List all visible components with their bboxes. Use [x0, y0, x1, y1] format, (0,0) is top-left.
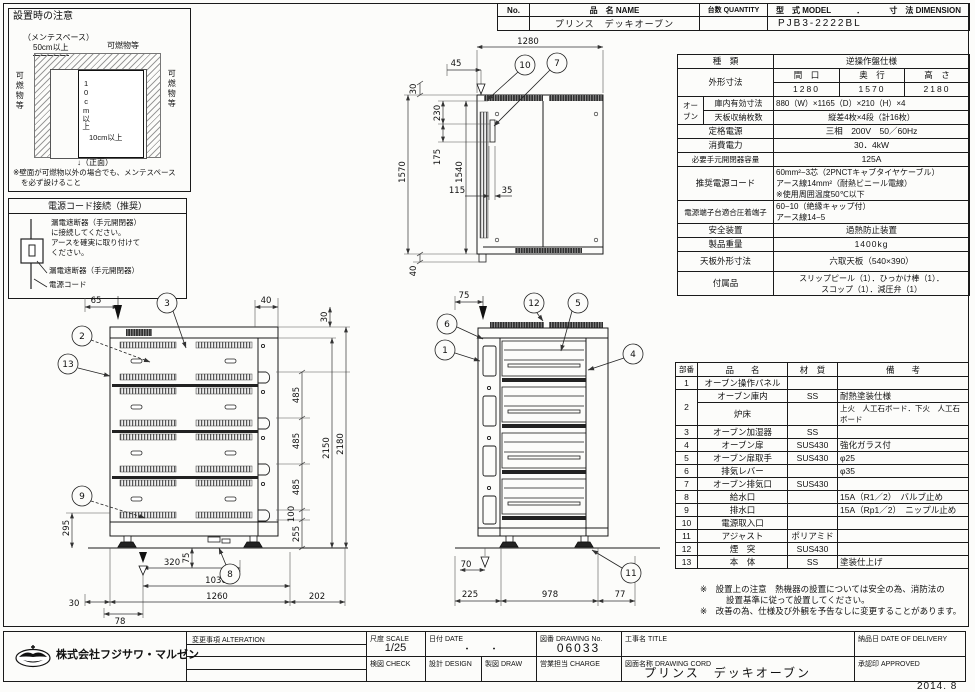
spec-breaker-value: 125A — [774, 153, 970, 167]
parts-row: 8給水口15A（R1／2） バルブ止め — [676, 491, 969, 504]
dim-label: 1570 — [398, 161, 408, 183]
dim-label: 2150 — [322, 437, 332, 459]
spec-accessory-value: スリップピール（1）．ひっかけ棒（1）． スコップ（1）．減圧弁（1） — [774, 272, 970, 296]
parts-note-header: 備 考 — [838, 363, 969, 377]
spec-tray-label: 天板収納枚数 — [704, 111, 774, 125]
header-qty-label: 台数 QUANTITY — [700, 4, 768, 17]
top-body — [477, 95, 603, 254]
front-deck-dividers — [502, 378, 586, 520]
parts-row: 1オーブン操作パネル — [676, 377, 969, 390]
position-open-arrow — [477, 84, 485, 94]
spec-power-value: 三相 200V 50／60Hz — [774, 125, 970, 139]
spec-oven-label: オーブン — [678, 97, 704, 125]
spec-safety-value: 過熱防止装置 — [774, 224, 970, 238]
callout-number: 9 — [79, 492, 85, 502]
parts-name-header: 品 名 — [698, 363, 788, 377]
spec-depth-label: 奥 行 — [840, 69, 905, 83]
project-title-label: 工事名 TITLE — [625, 634, 667, 644]
spec-accessory-label: 付属品 — [678, 272, 774, 296]
dim-label: 30 — [69, 599, 80, 609]
front-top-cap — [478, 328, 608, 338]
spec-weight-value: 1400kg — [774, 238, 970, 252]
dim-label: 77 — [615, 590, 626, 600]
spec-pan-value: 六取天板（540×390） — [774, 252, 970, 272]
parts-row: 5オーブン扉取手SUS430φ25 — [676, 452, 969, 465]
spec-table: 種 類 逆操作盤仕様 外形寸法 間 口 奥 行 高 さ 1280 1570 21… — [677, 54, 970, 296]
dim-label: 75 — [459, 291, 470, 301]
top-vent-duct — [480, 112, 488, 238]
drain-mark-open-arrow — [481, 557, 489, 567]
callout-number: 6 — [444, 320, 450, 330]
header-name-label: 品 名 NAME — [530, 4, 700, 17]
dim-label: 485 — [292, 387, 302, 403]
top-exhaust-slot — [490, 120, 495, 142]
dim-label: 78 — [115, 617, 126, 627]
spec-breaker-label: 必要手元開閉器容量 — [678, 153, 774, 167]
spec-weight-label: 製品重量 — [678, 238, 774, 252]
dim-label: 30 — [409, 84, 419, 95]
date-value: ・ ・ — [425, 644, 536, 654]
dim-label: 320 — [164, 558, 180, 568]
parts-row: 12煙 突SUS430 — [676, 543, 969, 556]
front-body — [478, 338, 608, 536]
callout-number: 4 — [630, 350, 636, 360]
dim-label: 1260 — [206, 592, 228, 602]
dim-label: 45 — [451, 59, 462, 69]
spec-inner-value: 880（W）×1165（D）×210（H）×4 — [774, 97, 970, 111]
spec-width-value: 1280 — [774, 83, 840, 97]
parts-row: 3オーブン加湿器SS — [676, 426, 969, 439]
top-view-dimensions: 1280 45 30 1570 1540 230 175 115 35 40 — [398, 37, 603, 276]
spec-depth-value: 1570 — [840, 83, 905, 97]
header-table: No. 品 名 NAME 台数 QUANTITY 型 式 MODEL ． 寸 法… — [497, 3, 970, 31]
header-model-value: PJB3-2222BL — [768, 17, 970, 31]
draw-label: 製図 DRAW — [485, 659, 522, 669]
chimney-strip — [490, 322, 544, 328]
drawing-name-value: プリンス デッキオーブン — [644, 667, 811, 681]
callout-number: 3 — [164, 299, 170, 309]
drawing-no-value: 06033 — [536, 642, 621, 656]
header-model-dim-label: 型 式 MODEL ． 寸 法 DIMENSION — [768, 4, 970, 17]
top-view-callouts: 10 7 — [487, 53, 567, 126]
sheet-note-2: 設置基準に従って設置してください。 — [726, 596, 870, 606]
front-view-callouts: 12 5 6 1 4 11 — [435, 293, 643, 583]
inlet-mark-filled-arrow — [139, 552, 147, 563]
callout-number: 10 — [519, 61, 531, 71]
dim-label: 1280 — [517, 37, 539, 47]
parts-row: 11アジャストポリアミド — [676, 530, 969, 543]
chimney-strip — [549, 322, 603, 328]
parts-row: 13本 体SS塗装仕上げ — [676, 556, 969, 569]
side-view — [88, 327, 348, 548]
date-label: 日付 DATE — [429, 634, 463, 644]
spec-safety-label: 安全装置 — [678, 224, 774, 238]
parts-row: 炉床上火 人工石ボード．下火 人工石ボード — [676, 403, 969, 426]
parts-row: 4オーブン扉SUS430強化ガラス付 — [676, 439, 969, 452]
callout-number: 1 — [442, 346, 448, 356]
dim-label: 40 — [409, 266, 419, 277]
drawing-sheet: No. 品 名 NAME 台数 QUANTITY 型 式 MODEL ． 寸 法… — [0, 0, 975, 692]
dim-label: 225 — [462, 590, 478, 600]
charge-label: 営業担当 CHARGE — [540, 659, 600, 669]
company-name: 株式会社フジサワ・マルゼン — [56, 649, 199, 662]
parts-row: 10電源取入口 — [676, 517, 969, 530]
spec-kind-value: 逆操作盤仕様 — [774, 55, 970, 69]
install-note-title: 設置時の注意 — [13, 11, 73, 23]
spec-consumption-value: 30．4kW — [774, 139, 970, 153]
spec-inner-label: 庫内有効寸法 — [704, 97, 774, 111]
sheet-note-1: ※ 設置上の注意 熱機器の設置については安全の為、消防法の — [700, 585, 945, 595]
callout-number: 7 — [554, 59, 560, 69]
parts-row: 7オーブン排気口SUS430 — [676, 478, 969, 491]
parts-table: 部番 品 名 材 質 備 考 1オーブン操作パネル 2オーブン庫内SS耐熱塗装仕… — [675, 362, 969, 569]
inlet-mark-filled-arrow — [479, 306, 487, 320]
parts-row: 6排気レバーφ35 — [676, 465, 969, 478]
dim-label: 485 — [292, 433, 302, 449]
dim-label: 295 — [62, 520, 72, 536]
dim-label: 115 — [449, 186, 465, 196]
spec-terminal-label: 電源端子台適合圧着端子 — [678, 201, 774, 224]
spec-outer-label: 外形寸法 — [678, 69, 774, 97]
door-hooks — [258, 344, 270, 521]
combustible-left-label: 可燃物等 — [15, 71, 24, 141]
spec-tray-value: 縦差4枚×4段（計16枚） — [774, 111, 970, 125]
corner-screws — [495, 112, 598, 242]
spec-kind-label: 種 類 — [678, 55, 774, 69]
spec-pan-label: 天板外形寸法 — [678, 252, 774, 272]
spec-cord-label: 推奨電源コード — [678, 167, 774, 201]
delivery-label: 納品日 DATE OF DELIVERY — [858, 634, 947, 644]
spec-height-label: 高 さ — [905, 69, 970, 83]
dim-label: 202 — [309, 592, 325, 602]
spec-consumption-label: 消費電力 — [678, 139, 774, 153]
dim-label: 65 — [91, 296, 102, 306]
dim-label: 70 — [461, 560, 472, 570]
spec-height-value: 2180 — [905, 83, 970, 97]
callout-number: 11 — [625, 569, 636, 579]
header-no-label: No. — [498, 4, 530, 17]
spec-power-label: 定格電源 — [678, 125, 774, 139]
check-label: 検図 CHECK — [370, 659, 410, 669]
dim-label: 40 — [261, 296, 272, 306]
operation-panels — [483, 346, 496, 524]
callout-number: 13 — [62, 360, 73, 370]
callout-number: 2 — [79, 332, 85, 342]
dim-label: 230 — [433, 105, 443, 121]
front-adjuster-feet — [500, 536, 593, 547]
parts-row: 9排水口15A（Rp1／2） ニップル止め — [676, 504, 969, 517]
water-fitting — [208, 537, 230, 543]
approved-label: 承認印 APPROVED — [858, 659, 920, 669]
alteration-label: 変更事項 ALTERATION — [192, 635, 265, 645]
center-mark-filled-arrow — [114, 305, 122, 320]
dim-label: 1540 — [455, 161, 465, 183]
dim-label: 30 — [320, 312, 330, 323]
dim-label: 255 — [292, 526, 302, 542]
scale-value: 1/25 — [366, 642, 425, 655]
spec-width-label: 間 口 — [774, 69, 840, 83]
dim-label: 485 — [292, 479, 302, 495]
dim-label: 35 — [502, 186, 513, 196]
title-block: 株式会社フジサワ・マルゼン 変更事項 ALTERATION 尺度 SCALE 1… — [3, 631, 966, 682]
spec-cord-value: 60mm²−3芯（2PNCTキャブタイヤケーブル） アース線14mm²（耐熱ビニ… — [774, 167, 970, 201]
side-top-vent — [126, 329, 152, 336]
top-view — [477, 95, 603, 262]
dim-label: 75 — [182, 553, 192, 564]
callout-number: 8 — [227, 570, 233, 580]
spec-terminal-value: 60−10（絶縁キャップ付） アース線14−5 — [774, 201, 970, 224]
inlet-mark-open-arrow — [139, 566, 147, 575]
company-logo — [14, 644, 52, 668]
sheet-note-3: ※ 改善の為、仕様及び外観を予告なしに変更することがあります。 — [700, 607, 961, 617]
parts-row: 2オーブン庫内SS耐熱塗装仕様 — [676, 390, 969, 403]
deck-dividers — [112, 384, 258, 479]
dim-label: 2180 — [336, 433, 346, 455]
dim-label: 100 — [287, 506, 297, 522]
header-qty-value — [700, 17, 768, 31]
parts-no-header: 部番 — [676, 363, 698, 377]
callout-number: 12 — [528, 299, 539, 309]
dim-label: 175 — [433, 149, 443, 165]
callout-number: 5 — [575, 299, 581, 309]
issue-date: 2014. 8 — [917, 681, 957, 692]
dim-label: 978 — [542, 590, 558, 600]
technical-drawing: 65 40 30 485 485 485 100 255 2150 2180 2… — [30, 28, 675, 628]
adjuster-feet — [118, 536, 262, 547]
parts-material-header: 材 質 — [788, 363, 838, 377]
design-label: 設計 DESIGN — [429, 659, 472, 669]
